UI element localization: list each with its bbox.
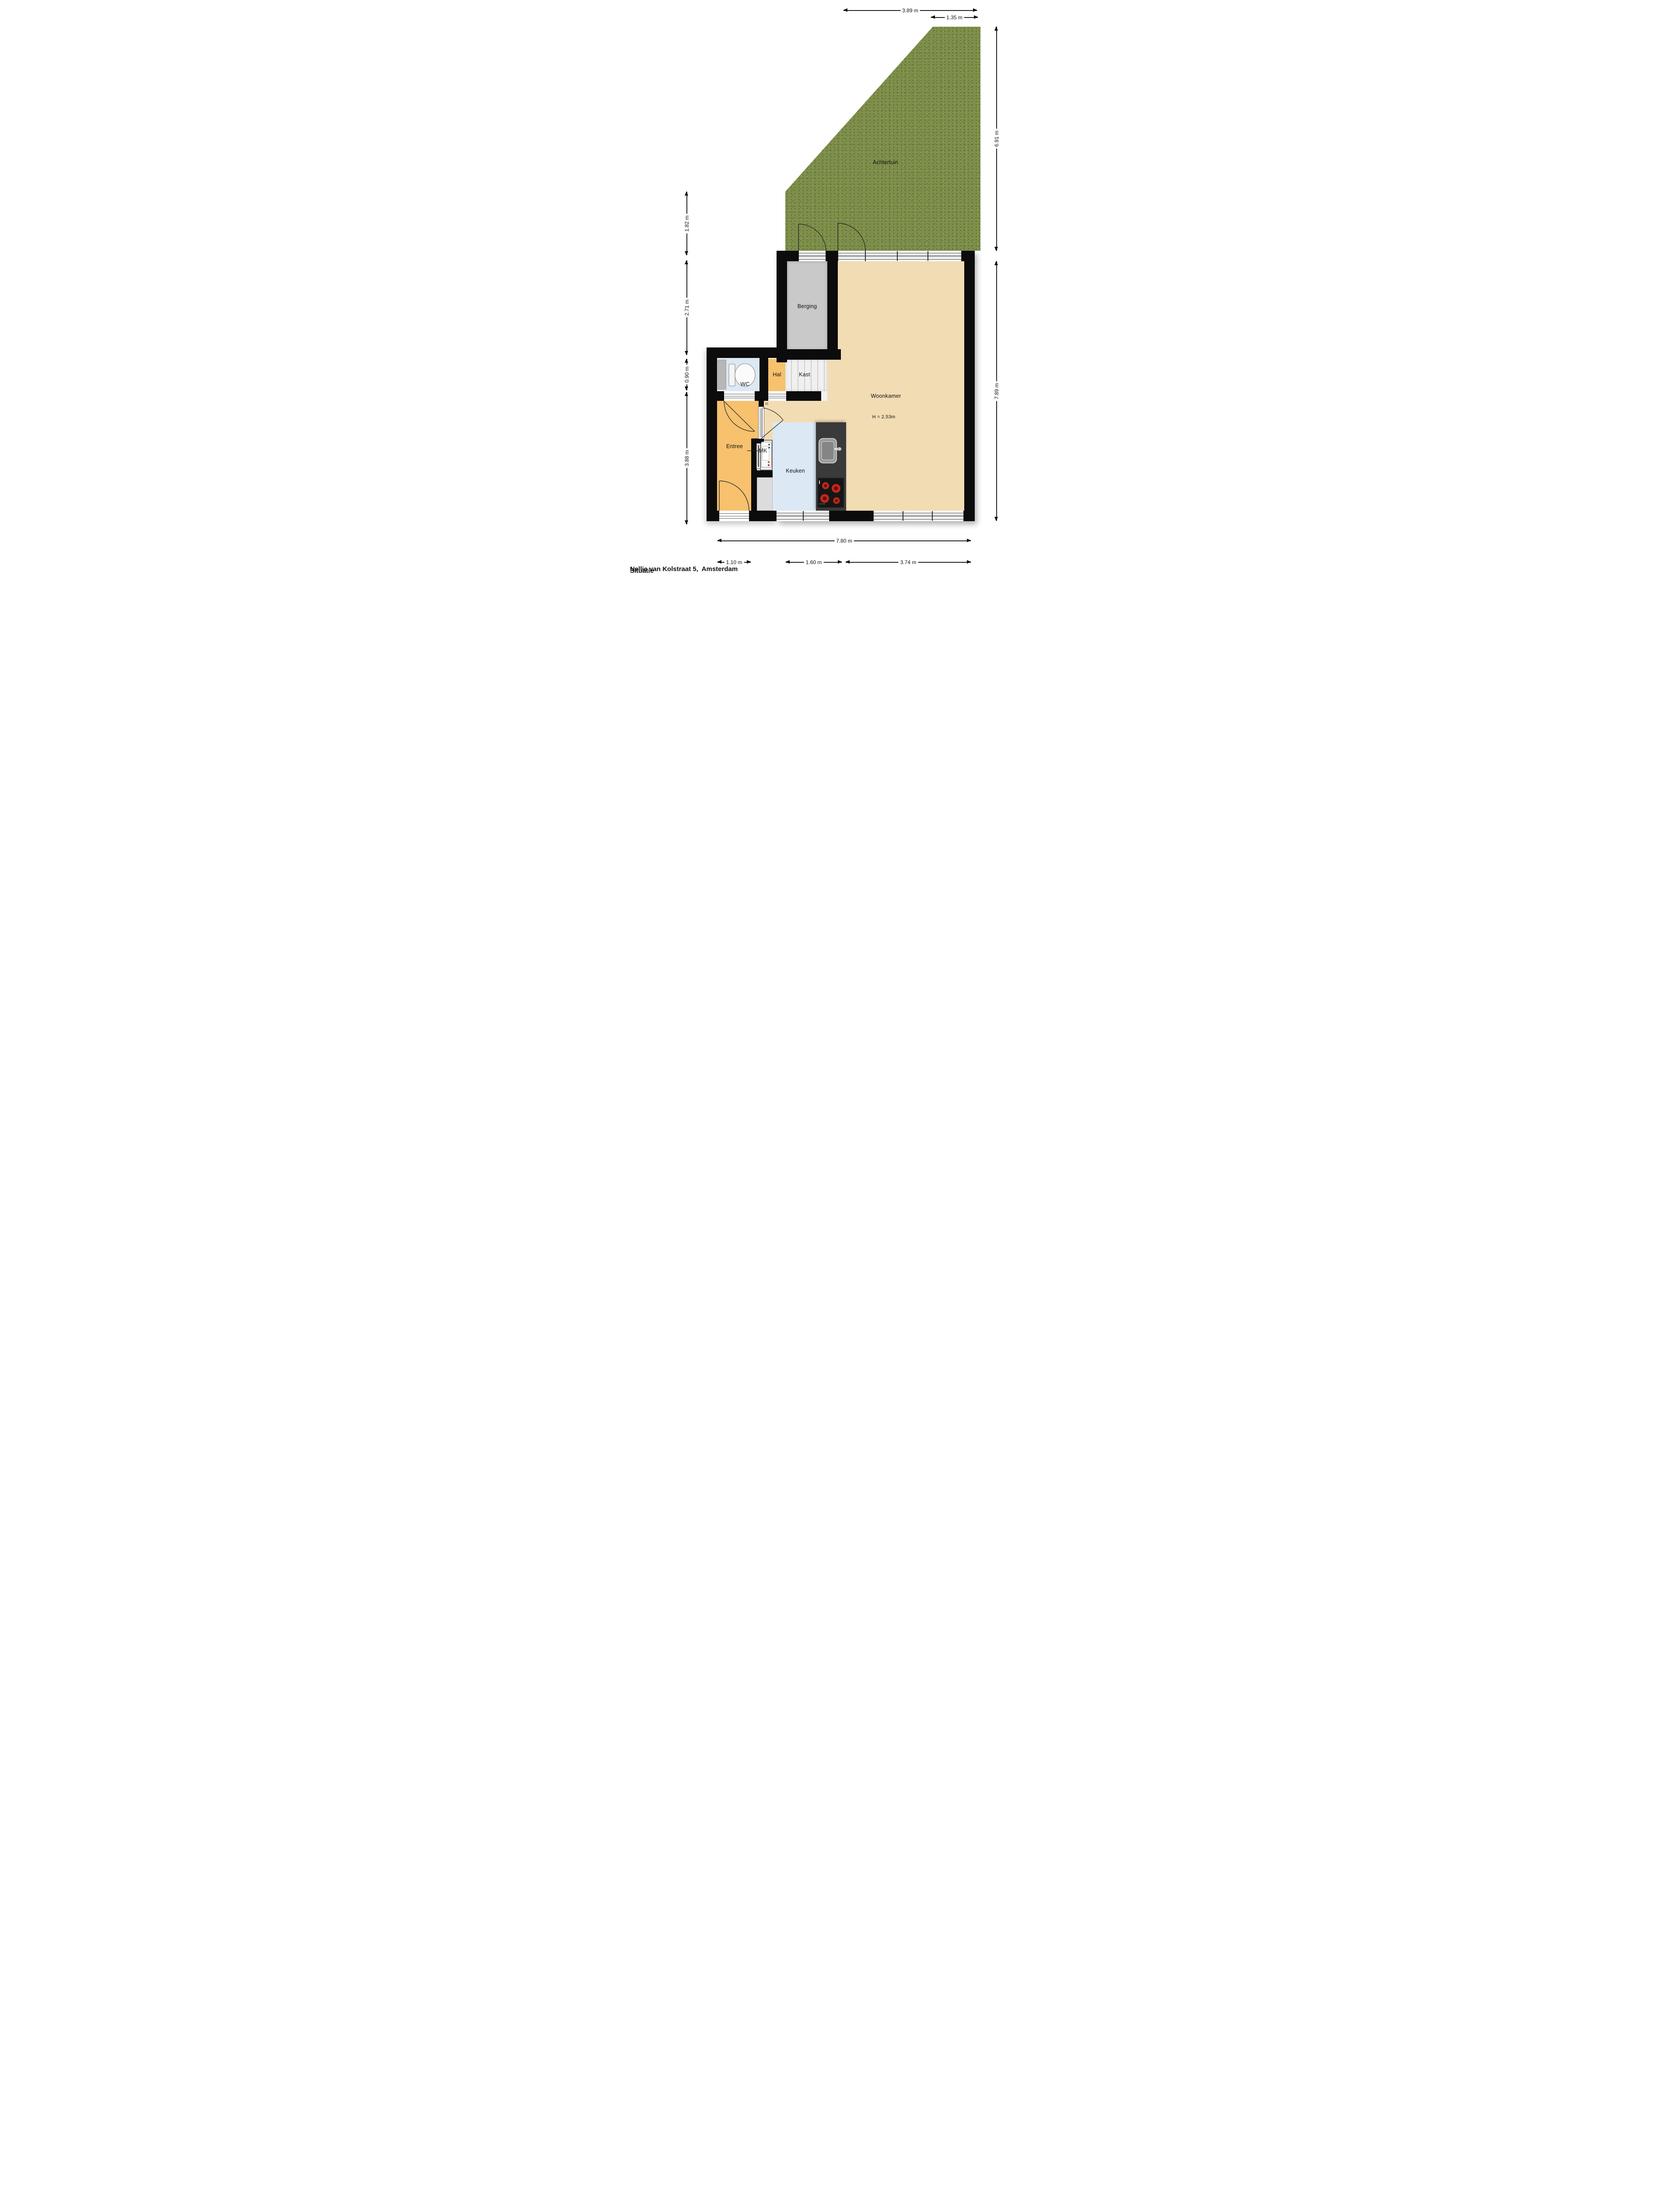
dimension-label: 1.60 m (804, 559, 824, 565)
dimension-left-182: 1.82 m (682, 192, 691, 255)
dimension-label: 0.90 m (684, 365, 690, 385)
floorplan-canvas: AchtertuinBergingWCHalKastWoonkamerH = 2… (630, 0, 1050, 594)
dimension-bottom-780: 7.80 m (717, 536, 971, 545)
dimension-label: 2.71 m (684, 298, 690, 318)
dimension-label: 3.74 m (899, 559, 918, 565)
dimension-label: 7.89 m (994, 381, 1000, 401)
dimension-right-691: 6.91 m (992, 27, 1001, 251)
dimension-lines-layer: 3.89 m1.35 m6.91 m7.89 m1.82 m2.71 m0.90… (630, 0, 1050, 594)
dimension-label: 1.82 m (684, 214, 690, 233)
dimension-left-388: 3.88 m (682, 392, 691, 524)
dimension-bottom-160: 1.60 m (786, 558, 842, 567)
dimension-label: 3.88 m (684, 449, 690, 468)
dimension-left-271: 2.71 m (682, 260, 691, 355)
dimension-label: 7.80 m (834, 538, 854, 544)
dimension-label: 1.35 m (945, 14, 964, 21)
dimension-label: 6.91 m (994, 129, 1000, 149)
dimension-label: 3.89 m (900, 7, 920, 14)
plan-type: Situatie (630, 567, 654, 575)
dimension-left-090: 0.90 m (682, 359, 691, 390)
dimension-label: 1.10 m (724, 559, 744, 565)
dimension-top-135: 1.35 m (931, 13, 978, 22)
dimension-bottom-374: 3.74 m (846, 558, 971, 567)
dimension-right-789: 7.89 m (992, 261, 1001, 521)
